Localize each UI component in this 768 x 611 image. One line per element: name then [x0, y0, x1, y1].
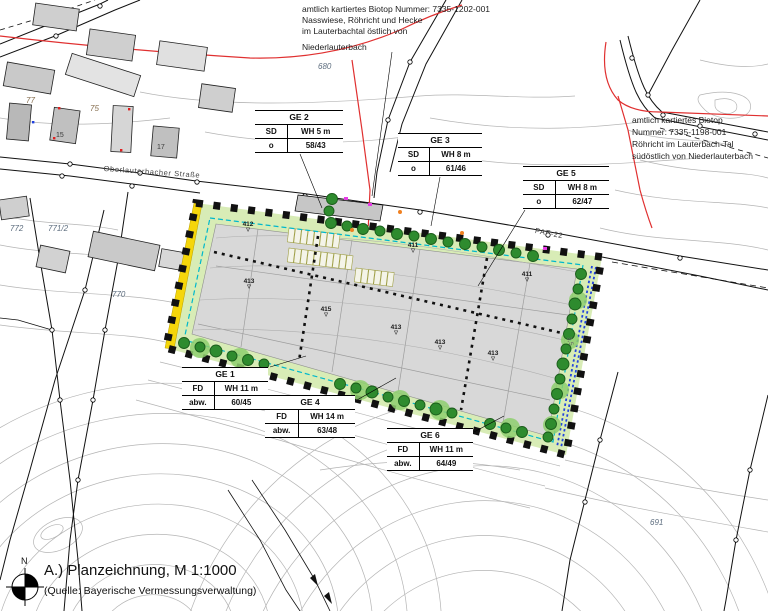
- parcel-number: 680: [318, 62, 331, 71]
- parcel-number: 691: [650, 518, 663, 527]
- ge-roof-type: FD: [265, 410, 299, 424]
- benchmark-icon: ▽: [391, 331, 402, 336]
- ge-roof-type: SD: [523, 181, 556, 195]
- ge-table-1: GE 1 FD WH 11 m abw. 60/45: [182, 367, 268, 410]
- ge-table-title: GE 6: [387, 429, 473, 443]
- biotope-note-line: im Lauterbachtal östlich von: [302, 26, 490, 37]
- ge-table-title: GE 5: [523, 167, 609, 181]
- site-point-label: 413▽: [244, 279, 255, 290]
- ge-roof-mark: abw.: [182, 396, 215, 409]
- ge-roof-type: FD: [182, 382, 215, 396]
- ge-roof-type: FD: [387, 443, 420, 457]
- ge-wall-height: WH 11 m: [420, 443, 473, 457]
- north-compass-icon: [6, 568, 44, 606]
- site-point-label: 411▽: [522, 272, 533, 283]
- ge-table-2: GE 2 SD WH 5 m o 58/43: [255, 110, 343, 153]
- parcel-number: 77: [26, 96, 35, 105]
- ge-table-title: GE 4: [265, 396, 355, 410]
- ge-roof-mark: o: [523, 195, 556, 208]
- biotope-note-line: amtlich kartiertes Biotop Nummer: 7335-1…: [302, 4, 490, 15]
- biotope-note-line: Niederlauterbach: [302, 42, 490, 53]
- parcel-number: 771/2: [48, 224, 68, 233]
- biotope-note-line: Röhricht im Lauterbach-Tal: [632, 138, 753, 150]
- ge-wall-height: WH 8 m: [430, 148, 482, 162]
- site-point-label: 415▽: [321, 307, 332, 318]
- ge-table-3: GE 3 SD WH 8 m o 61/46: [398, 133, 482, 176]
- ge-wall-height: WH 11 m: [215, 382, 268, 396]
- parcel-number: 772: [10, 224, 23, 233]
- ge-table-title: GE 1: [182, 368, 268, 382]
- ge-grz-gfz: 61/46: [430, 162, 482, 175]
- house-number: 17: [157, 144, 165, 151]
- site-point-label: 411▽: [408, 243, 419, 254]
- site-point-label: 413▽: [488, 351, 499, 362]
- biotope-note-right: amtlich kartiertes Biotop Nummer: 7335-1…: [632, 114, 753, 162]
- ge-grz-gfz: 62/47: [556, 195, 609, 208]
- flow-arrows: [310, 574, 332, 604]
- ge-roof-mark: o: [255, 139, 288, 152]
- site-plan: amtlich kartiertes Biotop Nummer: 7335-1…: [0, 0, 768, 611]
- benchmark-icon: ▽: [435, 346, 446, 351]
- ge-roof-mark: o: [398, 162, 430, 175]
- ge-roof-type: SD: [255, 125, 288, 139]
- parcel-number: 75: [90, 104, 99, 113]
- ge-grz-gfz: 60/45: [215, 396, 268, 409]
- ge-table-5: GE 5 SD WH 8 m o 62/47: [523, 166, 609, 209]
- house-number: 15: [56, 132, 64, 139]
- ge-wall-height: WH 14 m: [299, 410, 355, 424]
- benchmark-icon: ▽: [244, 285, 255, 290]
- benchmark-icon: ▽: [408, 249, 419, 254]
- biotope-note-line: amtlich kartiertes Biotop: [632, 114, 753, 126]
- biotope-note-line: Nasswiese, Röhricht und Hecke: [302, 15, 490, 26]
- benchmark-icon: ▽: [321, 313, 332, 318]
- ge-wall-height: WH 8 m: [556, 181, 609, 195]
- ge-roof-type: SD: [398, 148, 430, 162]
- ge-roof-mark: abw.: [387, 457, 420, 470]
- benchmark-icon: ▽: [243, 228, 254, 233]
- ge-table-title: GE 2: [255, 111, 343, 125]
- north-label: N: [21, 556, 28, 566]
- ge-roof-mark: abw.: [265, 424, 299, 437]
- biotope-note-line: südöstlich von Niederlauterbach: [632, 150, 753, 162]
- ge-grz-gfz: 63/48: [299, 424, 355, 437]
- parcel-number: 770: [112, 290, 125, 299]
- ge-wall-height: WH 5 m: [288, 125, 343, 139]
- ge-table-6: GE 6 FD WH 11 m abw. 64/49: [387, 428, 473, 471]
- ge-table-title: GE 3: [398, 134, 482, 148]
- ge-grz-gfz: 58/43: [288, 139, 343, 152]
- plan-title: A.) Planzeichnung, M 1:1000: [44, 562, 237, 579]
- ge-table-4: GE 4 FD WH 14 m abw. 63/48: [265, 395, 355, 438]
- biotope-note-top: amtlich kartiertes Biotop Nummer: 7335-1…: [302, 4, 490, 53]
- plan-source: (Quelle: Bayerische Vermessungsverwaltun…: [44, 585, 256, 597]
- benchmark-icon: ▽: [522, 278, 533, 283]
- ge-grz-gfz: 64/49: [420, 457, 473, 470]
- site-point-label: 413▽: [391, 325, 402, 336]
- site-point-label: 412▽: [243, 222, 254, 233]
- site-point-label: 413▽: [435, 340, 446, 351]
- benchmark-icon: ▽: [488, 357, 499, 362]
- biotope-note-line: Nummer: 7335-1198-001: [632, 126, 753, 138]
